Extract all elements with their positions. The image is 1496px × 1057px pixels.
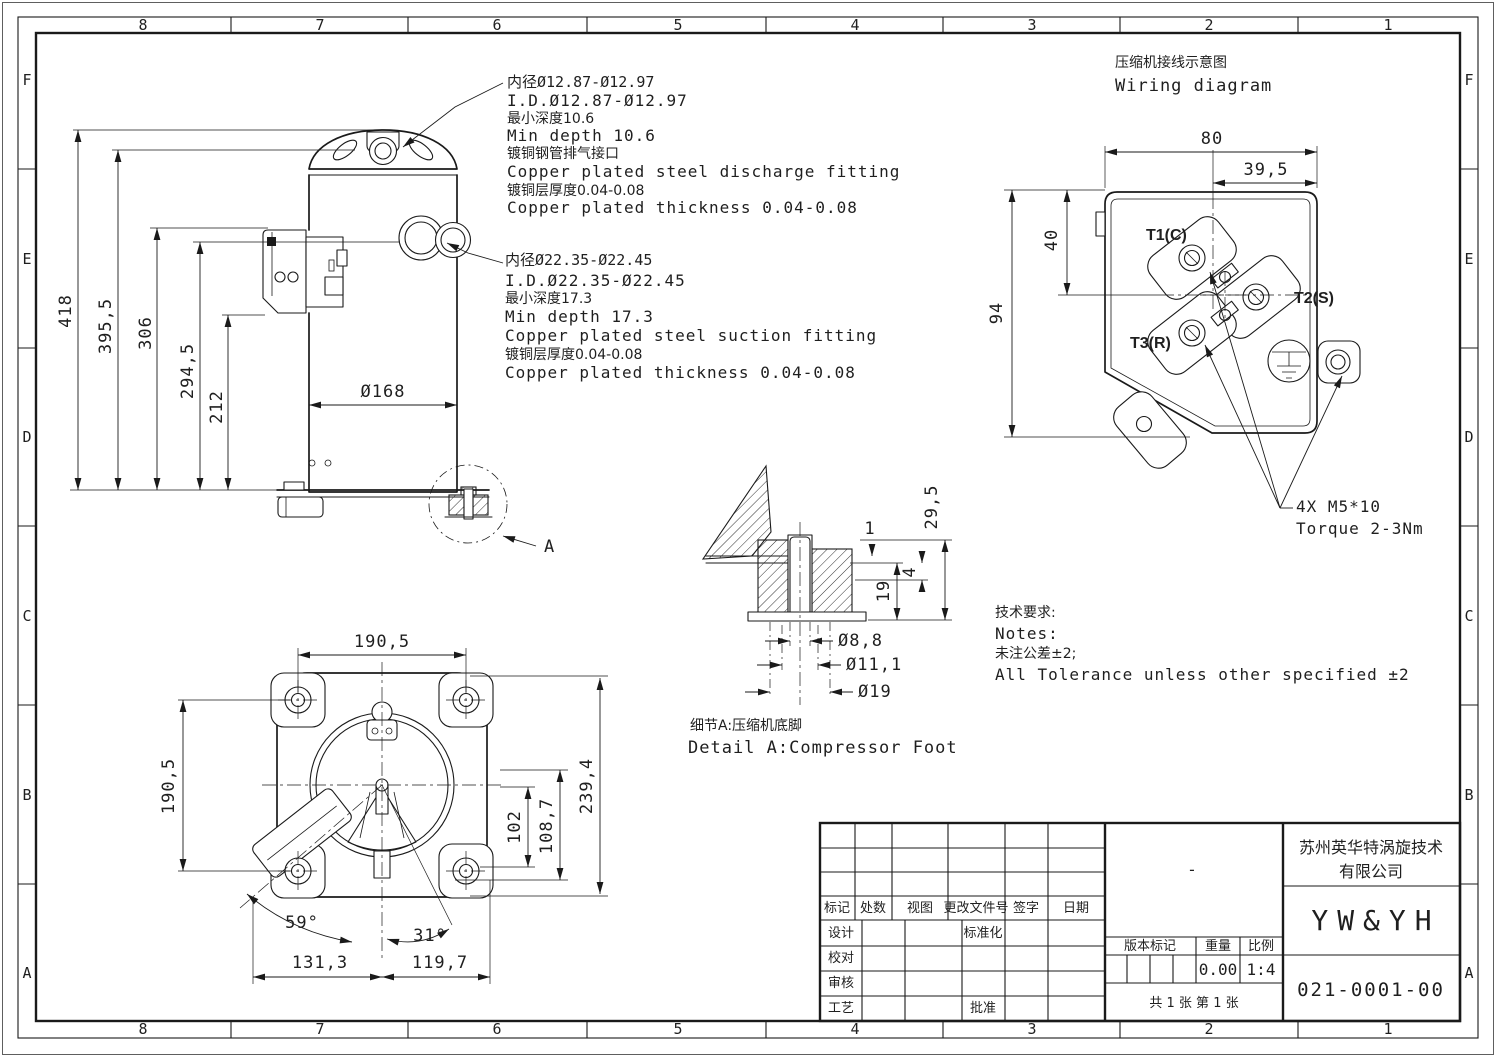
suction-note-line7: Copper plated thickness 0.04-0.08	[505, 363, 856, 382]
zone-label-bottom-7: 7	[315, 1020, 324, 1038]
terminal-label-t2: T2(S)	[1294, 290, 1334, 307]
dim-label-top-190-5: 190,5	[354, 632, 410, 652]
detail-circle-marker: A	[429, 465, 555, 557]
zone-label-top-7: 7	[315, 16, 324, 34]
detail-a-view: 1 29,5 19 4 Ø8,8 Ø11,1 Ø19 细节A:压缩机底脚 Det…	[688, 466, 958, 758]
zone-label-top-4: 4	[850, 16, 859, 34]
drawing-number: 021-0001-00	[1297, 979, 1445, 1001]
tech-notes: 技术要求: Notes: 未注公差±2; All Tolerance unles…	[995, 605, 1410, 684]
suction-note: 内径Ø22.35-Ø22.45 I.D.Ø22.35-Ø22.45 最小深度17…	[505, 251, 877, 382]
dim-label-119-7: 119,7	[412, 953, 468, 973]
dim-label-294-5: 294,5	[178, 343, 198, 399]
terminal-label-t3: T3(R)	[1130, 335, 1171, 352]
discharge-note-line2: I.D.Ø12.87-Ø12.97	[507, 91, 688, 110]
dim-label-108-7: 108,7	[537, 798, 557, 854]
bottom-mount-tab	[1108, 386, 1192, 474]
dim-label-dia8-8: Ø8,8	[838, 631, 883, 651]
zone-label-bottom-3: 3	[1027, 1020, 1036, 1038]
sheet-info: 共 1 张 第 1 张	[1149, 996, 1238, 1011]
suction-note-line2: I.D.Ø22.35-Ø22.45	[505, 271, 686, 290]
wiring-diagram: 压缩机接线示意图 Wiring diagram T1(C	[987, 54, 1424, 538]
zone-label-right-a: A	[1464, 964, 1473, 982]
dim-label-80: 80	[1201, 129, 1223, 149]
zone-label-left-c: C	[22, 607, 31, 625]
notes-heading-en: Notes:	[995, 624, 1059, 643]
discharge-note-line4: Min depth 10.6	[507, 126, 656, 145]
zone-label-bottom-8: 8	[138, 1020, 147, 1038]
dim-label-4: 4	[900, 566, 920, 577]
notes-tolerance-cn: 未注公差±2;	[995, 646, 1076, 662]
dim-label-131-3: 131,3	[292, 953, 348, 973]
zone-label-right-e: E	[1464, 250, 1473, 268]
dim-label-94: 94	[987, 302, 1007, 324]
revision-header-count: 处数	[860, 901, 886, 916]
revision-header-row: 标记 处数 视图 更改文件号 签字 日期	[824, 900, 1089, 916]
discharge-note-line1: 内径Ø12.87-Ø12.97	[507, 73, 654, 91]
fastener-note-line2: Torque 2-3Nm	[1296, 519, 1424, 538]
dim-label-102: 102	[505, 810, 525, 844]
revision-header-sign: 签字	[1013, 900, 1039, 916]
dim-label-239-4: 239,4	[577, 758, 597, 814]
scale-label: 比例	[1248, 939, 1274, 954]
discharge-note-line6: Copper plated steel discharge fitting	[507, 162, 900, 181]
sig-label-standardization: 标准化	[963, 926, 1002, 941]
dim-label-left-190-5: 190,5	[159, 758, 179, 814]
dim-label-212: 212	[207, 390, 227, 424]
side-mount-tab	[1318, 341, 1360, 383]
zone-label-top-8: 8	[138, 16, 147, 34]
revision-header-date: 日期	[1063, 901, 1089, 916]
side-view-dimensions: 418 395,5 306 294,5 212 Ø168	[56, 130, 457, 490]
scale-value: 1:4	[1247, 960, 1276, 979]
version-weight-scale: 版本标记 重量 比例 0.00 1:4 共 1 张 第 1 张 -	[1124, 860, 1275, 1011]
bottom-view: 190,5 190,5 239,4 102 108,7 59° 31° 131,…	[159, 632, 608, 984]
revision-header-view: 视图	[907, 901, 933, 916]
zone-label-top-5: 5	[673, 16, 682, 34]
fastener-note-line1: 4X M5*10	[1296, 497, 1381, 516]
compressor-shell	[309, 130, 457, 492]
dim-label-59deg: 59°	[285, 913, 319, 933]
dim-label-29-5: 29,5	[922, 485, 942, 530]
dim-label-39-5: 39,5	[1244, 160, 1289, 180]
company-name-line2: 有限公司	[1339, 862, 1403, 881]
revision-header-mark: 标记	[824, 901, 850, 916]
zone-label-right-d: D	[1464, 428, 1473, 446]
zone-label-bottom-4: 4	[850, 1020, 859, 1038]
discharge-note: 内径Ø12.87-Ø12.97 I.D.Ø12.87-Ø12.97 最小深度10…	[507, 73, 900, 217]
detail-a-caption-cn: 细节A:压缩机底脚	[690, 718, 802, 734]
notes-tolerance-en: All Tolerance unless other specified ±2	[995, 665, 1410, 684]
zone-label-bottom-6: 6	[492, 1020, 501, 1038]
dim-label-dia11-1: Ø11,1	[846, 655, 902, 675]
zone-label-right-f: F	[1464, 71, 1473, 89]
product-model: YW&YH	[1311, 904, 1440, 937]
discharge-note-line7: 镀铜层厚度0.04-0.08	[507, 182, 644, 199]
foot-grommet-section	[748, 522, 866, 705]
zone-label-top-6: 6	[492, 16, 501, 34]
zone-label-left-e: E	[22, 250, 31, 268]
drawing-canvas: 8 7 6 5 4 3 2 1 8 7 6 5 4 3 2 1 F E D C …	[0, 0, 1496, 1057]
dim-label-418: 418	[56, 294, 76, 328]
dim-label-dia19: Ø19	[858, 682, 892, 702]
terminal-label-t1: T1(C)	[1146, 227, 1187, 244]
dim-label-19: 19	[874, 580, 894, 602]
zone-label-left-d: D	[22, 428, 31, 446]
zone-label-top-2: 2	[1204, 16, 1213, 34]
material-dash: -	[1187, 860, 1197, 879]
zone-label-top-1: 1	[1383, 16, 1392, 34]
suction-note-line1: 内径Ø22.35-Ø22.45	[505, 251, 652, 269]
drawing-sheet: 8 7 6 5 4 3 2 1 8 7 6 5 4 3 2 1 F E D C …	[0, 0, 1496, 1057]
side-view: A 418 395,5 306 294,5 212 Ø168	[56, 83, 555, 557]
suction-note-line3: 最小深度17.3	[505, 291, 592, 307]
wiring-title-cn: 压缩机接线示意图	[1115, 54, 1227, 71]
company-product: 苏州英华特涡旋技术 有限公司 YW&YH 021-0001-00	[1297, 838, 1445, 1001]
dim-label-40: 40	[1042, 229, 1062, 251]
terminal-box	[263, 230, 347, 313]
sig-label-process: 工艺	[828, 1001, 854, 1016]
version-label: 版本标记	[1124, 939, 1176, 954]
zone-label-bottom-5: 5	[673, 1020, 682, 1038]
discharge-note-line5: 镀铜钢管排气接口	[507, 145, 619, 162]
dim-label-306: 306	[136, 316, 156, 350]
zone-label-right-c: C	[1464, 607, 1473, 625]
zone-label-bottom-1: 1	[1383, 1020, 1392, 1038]
suction-note-line5: Copper plated steel suction fitting	[505, 326, 877, 345]
ground-symbol	[1268, 340, 1310, 382]
discharge-note-line8: Copper plated thickness 0.04-0.08	[507, 198, 858, 217]
sig-label-check: 校对	[828, 950, 854, 966]
suction-note-line6: 镀铜层厚度0.04-0.08	[505, 346, 642, 363]
title-block: 标记 处数 视图 更改文件号 签字 日期 设计 校对 审核 工艺 标准化 批准 …	[820, 823, 1460, 1021]
zone-label-left-b: B	[22, 786, 31, 804]
zone-label-left-f: F	[22, 71, 31, 89]
dim-label-395-5: 395,5	[96, 298, 116, 354]
dim-label-dia168: Ø168	[361, 382, 406, 402]
zone-label-right-b: B	[1464, 786, 1473, 804]
sig-label-review: 审核	[828, 976, 854, 991]
wiring-title-en: Wiring diagram	[1115, 76, 1272, 96]
dim-label-plate-1: 1	[864, 519, 875, 539]
dim-label-31deg: 31°	[413, 926, 447, 946]
sig-label-design: 设计	[828, 926, 854, 941]
weight-value: 0.00	[1199, 960, 1238, 979]
zone-label-left-a: A	[22, 964, 31, 982]
suction-fitting	[399, 216, 471, 260]
weight-label: 重量	[1205, 938, 1231, 954]
zone-label-bottom-2: 2	[1204, 1020, 1213, 1038]
sig-label-approval: 批准	[970, 1001, 996, 1016]
revision-header-docno: 更改文件号	[943, 901, 1008, 916]
detail-a-caption-en: Detail A:Compressor Foot	[688, 738, 958, 758]
company-name-line1: 苏州英华特涡旋技术	[1299, 838, 1443, 857]
notes-heading-cn: 技术要求:	[995, 605, 1056, 621]
zone-label-top-3: 3	[1027, 16, 1036, 34]
discharge-note-line3: 最小深度10.6	[507, 111, 594, 127]
detail-marker-label: A	[544, 537, 555, 557]
suction-note-line4: Min depth 17.3	[505, 307, 654, 326]
